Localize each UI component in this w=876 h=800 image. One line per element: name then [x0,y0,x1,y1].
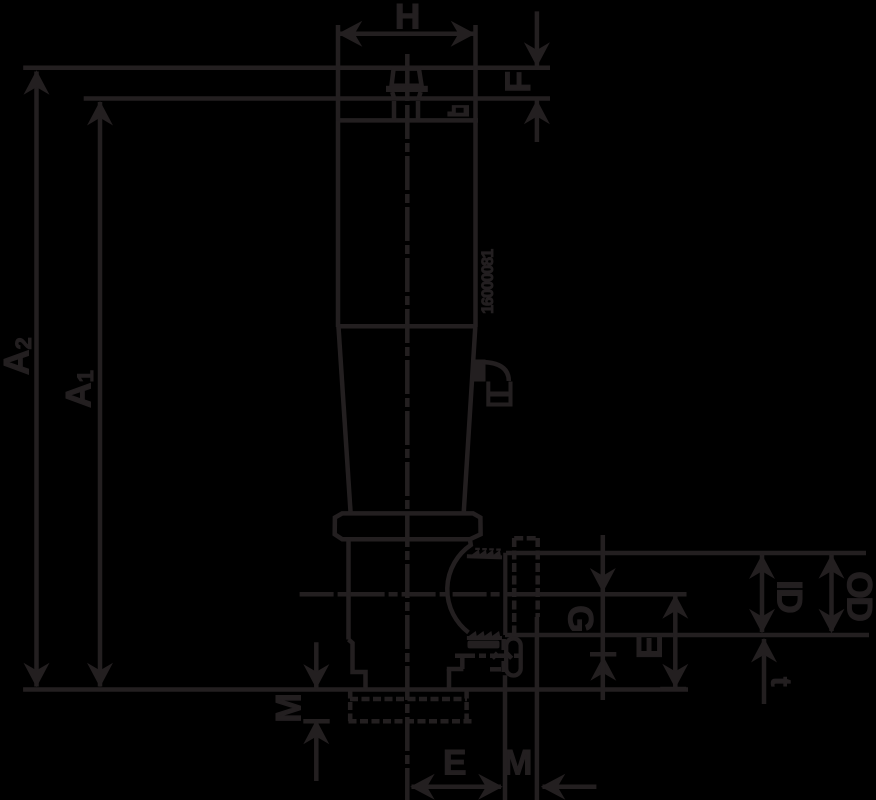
svg-text:16000081: 16000081 [479,249,497,314]
svg-text:A2: A2 [0,337,36,375]
svg-text:OD: OD [840,571,876,621]
svg-text:G: G [561,605,601,633]
svg-text:A1: A1 [58,370,98,408]
svg-text:E: E [443,742,467,782]
svg-text:H: H [395,0,421,36]
svg-text:M: M [503,742,533,782]
svg-text:M: M [268,693,308,723]
svg-text:F: F [498,71,538,93]
svg-text:ID: ID [769,580,809,613]
svg-text:E: E [629,635,669,659]
svg-text:t: t [764,677,796,687]
